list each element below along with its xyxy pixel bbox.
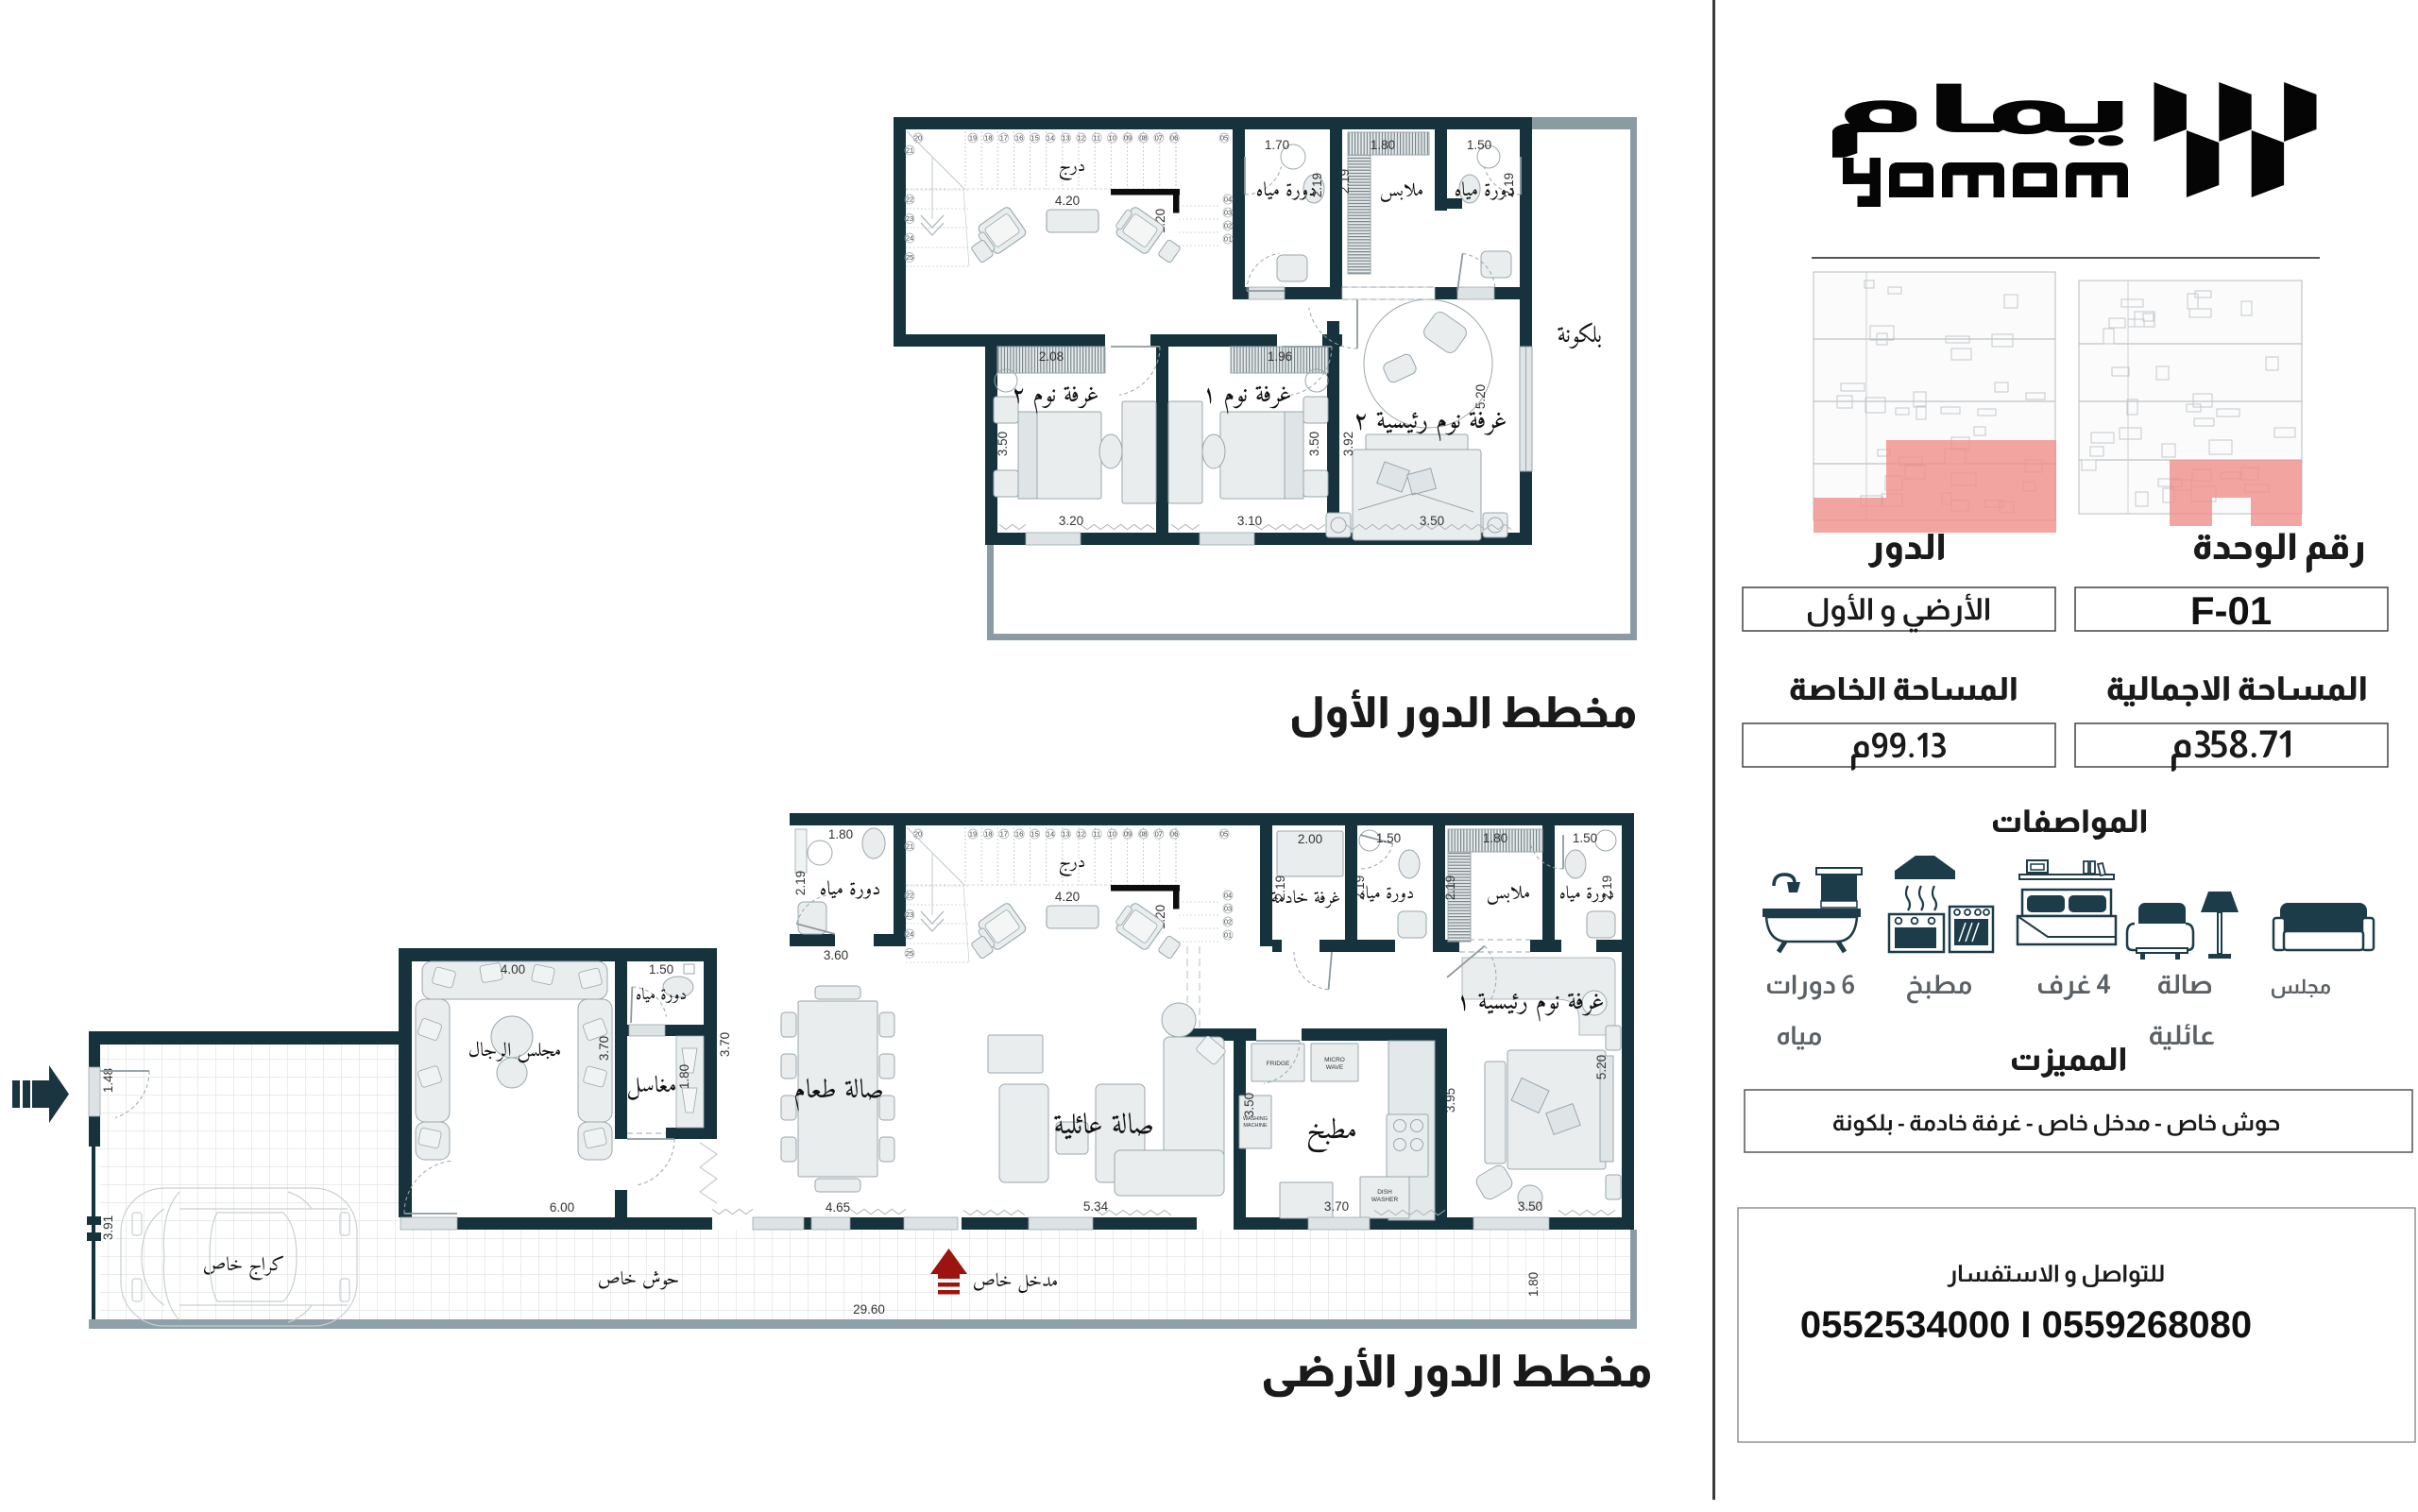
svg-text:2.19: 2.19 bbox=[1502, 173, 1516, 197]
svg-text:0552534000 I 0559268080: 0552534000 I 0559268080 bbox=[1800, 1304, 2252, 1346]
svg-text:MICRO: MICRO bbox=[1324, 1057, 1345, 1063]
svg-text:10: 10 bbox=[1108, 830, 1115, 839]
svg-text:13: 13 bbox=[1062, 830, 1069, 839]
svg-text:17: 17 bbox=[1000, 830, 1008, 839]
svg-text:17: 17 bbox=[1000, 134, 1008, 143]
svg-text:3.50: 3.50 bbox=[1420, 514, 1444, 528]
svg-text:4.00: 4.00 bbox=[501, 962, 525, 977]
svg-text:2.19: 2.19 bbox=[1273, 875, 1287, 900]
svg-text:09: 09 bbox=[1124, 134, 1132, 143]
svg-text:22: 22 bbox=[906, 892, 913, 900]
svg-text:09: 09 bbox=[1124, 830, 1132, 839]
svg-text:5.34: 5.34 bbox=[1083, 1199, 1109, 1214]
svg-text:23: 23 bbox=[906, 910, 913, 919]
svg-text:22: 22 bbox=[906, 195, 913, 204]
svg-text:3.50: 3.50 bbox=[1518, 1199, 1542, 1214]
svg-text:19: 19 bbox=[969, 830, 977, 839]
svg-text:18: 18 bbox=[984, 134, 992, 143]
svg-text:3.50: 3.50 bbox=[1307, 432, 1321, 456]
svg-text:07: 07 bbox=[1155, 134, 1163, 143]
svg-text:02: 02 bbox=[1224, 918, 1232, 926]
svg-text:16: 16 bbox=[1015, 830, 1023, 839]
svg-text:04: 04 bbox=[1224, 195, 1232, 204]
svg-text:DISH: DISH bbox=[1377, 1189, 1392, 1196]
svg-text:4.20: 4.20 bbox=[1055, 194, 1080, 208]
svg-text:2.00: 2.00 bbox=[1298, 832, 1322, 846]
svg-text:11: 11 bbox=[1093, 134, 1100, 143]
svg-text:16: 16 bbox=[1015, 134, 1023, 143]
svg-text:MACHINE: MACHINE bbox=[1243, 1123, 1268, 1129]
svg-text:24: 24 bbox=[906, 234, 913, 243]
svg-text:2.19: 2.19 bbox=[1337, 169, 1352, 194]
svg-text:24: 24 bbox=[906, 930, 913, 939]
svg-text:1.50: 1.50 bbox=[1376, 831, 1401, 845]
svg-text:03: 03 bbox=[1224, 905, 1232, 913]
svg-text:3.60: 3.60 bbox=[824, 948, 848, 962]
svg-text:2.19: 2.19 bbox=[1600, 875, 1614, 900]
svg-text:6.00: 6.00 bbox=[550, 1200, 574, 1215]
svg-text:1.80: 1.80 bbox=[1526, 1272, 1541, 1297]
svg-text:10: 10 bbox=[1108, 134, 1115, 143]
svg-text:2.19: 2.19 bbox=[1443, 875, 1457, 900]
svg-text:05: 05 bbox=[1220, 134, 1228, 143]
svg-text:08: 08 bbox=[1139, 830, 1147, 839]
svg-text:1.50: 1.50 bbox=[1573, 831, 1597, 845]
svg-text:02: 02 bbox=[1224, 222, 1232, 230]
svg-text:WASHER: WASHER bbox=[1371, 1197, 1399, 1203]
svg-text:4.65: 4.65 bbox=[826, 1200, 850, 1215]
svg-text:1.80: 1.80 bbox=[828, 827, 853, 841]
svg-text:3.70: 3.70 bbox=[1324, 1199, 1349, 1214]
svg-text:5.20: 5.20 bbox=[1473, 384, 1488, 409]
svg-text:05: 05 bbox=[1220, 830, 1228, 839]
svg-text:08: 08 bbox=[1139, 134, 1147, 143]
svg-text:12: 12 bbox=[1078, 830, 1085, 839]
svg-text:04: 04 bbox=[1224, 892, 1232, 900]
svg-text:3.50: 3.50 bbox=[1242, 1093, 1256, 1117]
svg-text:23: 23 bbox=[906, 214, 913, 223]
svg-text:3.92: 3.92 bbox=[1341, 432, 1355, 456]
svg-text:01: 01 bbox=[1224, 235, 1232, 244]
svg-text:07: 07 bbox=[1155, 830, 1163, 839]
svg-text:2.19: 2.19 bbox=[1310, 173, 1324, 197]
svg-text:2.19: 2.19 bbox=[793, 871, 808, 895]
svg-text:15: 15 bbox=[1030, 134, 1038, 143]
svg-text:14: 14 bbox=[1047, 134, 1054, 143]
svg-text:1.80: 1.80 bbox=[1371, 138, 1395, 152]
svg-text:06: 06 bbox=[1170, 830, 1178, 839]
svg-text:20: 20 bbox=[914, 134, 922, 143]
svg-text:06: 06 bbox=[1170, 134, 1178, 143]
svg-text:18: 18 bbox=[984, 830, 992, 839]
svg-text:5.20: 5.20 bbox=[1594, 1055, 1609, 1079]
svg-text:3.95: 3.95 bbox=[1443, 1088, 1457, 1113]
svg-text:15: 15 bbox=[1030, 830, 1038, 839]
svg-text:3.50: 3.50 bbox=[996, 432, 1010, 456]
svg-text:1.50: 1.50 bbox=[1467, 138, 1491, 152]
svg-text:2.08: 2.08 bbox=[1039, 349, 1064, 364]
svg-text:1.80: 1.80 bbox=[1483, 831, 1507, 845]
svg-text:20: 20 bbox=[914, 830, 922, 839]
svg-text:25: 25 bbox=[906, 253, 913, 262]
svg-text:01: 01 bbox=[1224, 931, 1232, 940]
svg-text:3.70: 3.70 bbox=[718, 1032, 732, 1057]
svg-text:WAVE: WAVE bbox=[1326, 1064, 1344, 1071]
svg-text:13: 13 bbox=[1062, 134, 1069, 143]
svg-text:1.50: 1.50 bbox=[649, 962, 673, 977]
svg-text:4.20: 4.20 bbox=[1055, 890, 1080, 904]
svg-text:12: 12 bbox=[1078, 134, 1085, 143]
svg-text:11: 11 bbox=[1093, 830, 1100, 839]
svg-text:1.96: 1.96 bbox=[1268, 349, 1292, 364]
svg-text:21: 21 bbox=[906, 146, 913, 155]
svg-text:3.91: 3.91 bbox=[101, 1215, 115, 1240]
svg-text:29.60: 29.60 bbox=[853, 1302, 885, 1317]
svg-text:3.20: 3.20 bbox=[1059, 514, 1083, 528]
svg-text:3.10: 3.10 bbox=[1237, 514, 1262, 528]
svg-text:1.70: 1.70 bbox=[1265, 138, 1289, 152]
svg-text:3.70: 3.70 bbox=[597, 1036, 611, 1061]
svg-text:FRIDGE: FRIDGE bbox=[1267, 1061, 1290, 1067]
svg-text:2.19: 2.19 bbox=[1353, 875, 1367, 900]
svg-text:19: 19 bbox=[969, 134, 977, 143]
svg-text:25: 25 bbox=[906, 949, 913, 958]
svg-text:1.80: 1.80 bbox=[677, 1064, 691, 1089]
svg-text:14: 14 bbox=[1047, 830, 1054, 839]
svg-text:F-01: F-01 bbox=[2190, 588, 2272, 633]
svg-text:03: 03 bbox=[1224, 209, 1232, 217]
svg-text:21: 21 bbox=[906, 842, 913, 851]
